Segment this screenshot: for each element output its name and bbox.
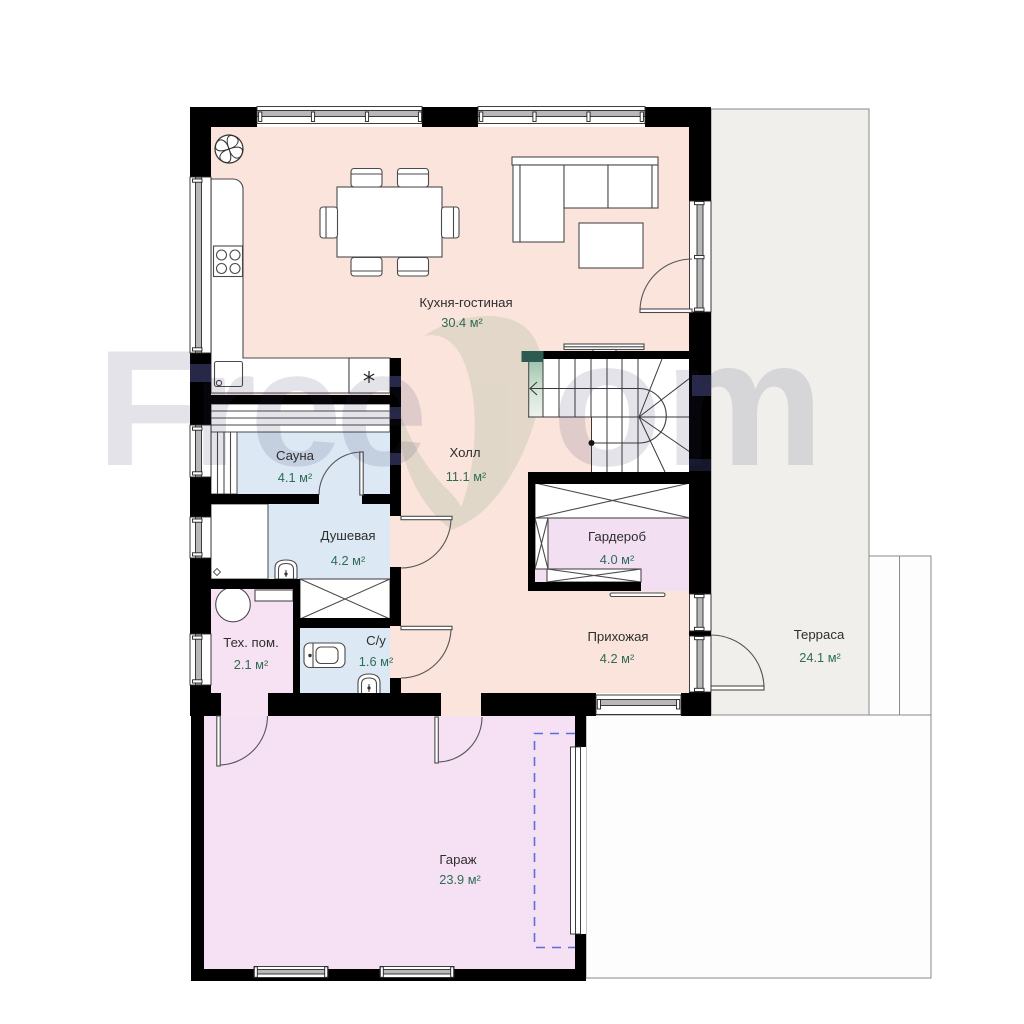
svg-text:Free: Free bbox=[97, 316, 423, 500]
svg-text:30.4 м²: 30.4 м² bbox=[441, 315, 483, 330]
svg-text:1.6 м²: 1.6 м² bbox=[359, 654, 394, 669]
svg-text:4.2 м²: 4.2 м² bbox=[331, 553, 366, 568]
svg-text:4.0 м²: 4.0 м² bbox=[600, 552, 635, 567]
svg-text:4.1 м²: 4.1 м² bbox=[278, 470, 313, 485]
svg-text:Терраса: Терраса bbox=[794, 627, 845, 642]
svg-text:23.9 м²: 23.9 м² bbox=[439, 872, 481, 887]
svg-text:Тех. пом.: Тех. пом. bbox=[223, 635, 279, 650]
svg-text:2.1 м²: 2.1 м² bbox=[234, 657, 269, 672]
svg-text:Кухня-гостиная: Кухня-гостиная bbox=[419, 295, 512, 310]
svg-text:Гараж: Гараж bbox=[439, 852, 476, 867]
svg-text:Гардероб: Гардероб bbox=[588, 529, 646, 544]
svg-text:24.1 м²: 24.1 м² bbox=[799, 650, 841, 665]
svg-text:11.1 м²: 11.1 м² bbox=[446, 469, 487, 484]
svg-text:Душевая: Душевая bbox=[320, 528, 375, 543]
svg-text:С/у: С/у bbox=[366, 633, 386, 648]
svg-text:Холл: Холл bbox=[449, 445, 480, 460]
svg-text:om: om bbox=[552, 303, 826, 504]
svg-text:Прихожая: Прихожая bbox=[587, 629, 648, 644]
svg-text:4.2 м²: 4.2 м² bbox=[600, 651, 635, 666]
svg-text:Сауна: Сауна bbox=[276, 448, 315, 463]
